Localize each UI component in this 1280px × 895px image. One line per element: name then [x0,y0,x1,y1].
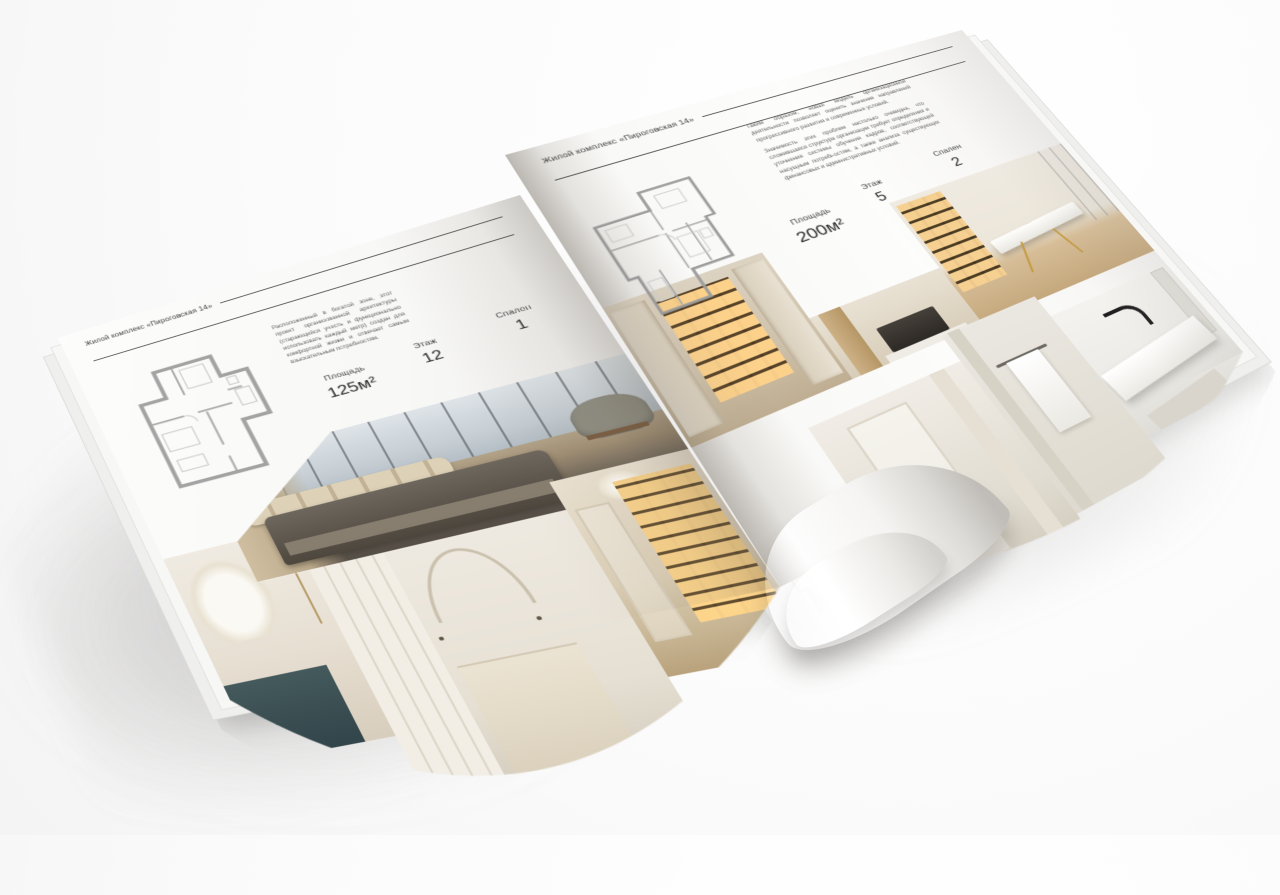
gold-desk-leg [1053,228,1084,252]
white-desk [990,202,1084,255]
description-paragraph: Расположенный в богатой зоне, этот проек… [271,290,416,367]
decor-arch [404,538,536,623]
wall-sconces [438,636,445,641]
gold-desk-leg [1020,242,1034,273]
floor-plan-drawing-left [110,335,312,501]
page-title: Жилой комплекс «Пироговская 14» [540,116,696,165]
plan-furniture [594,188,740,304]
plan-outer-walls [128,349,294,487]
black-faucet [1103,301,1154,339]
mockup-scene: Жилой комплекс «Пироговская 14» [0,0,1280,835]
header-leader-rule [220,216,503,303]
page-title: Жилой комплекс «Пироговская 14» [84,302,214,347]
apartment-description: Расположенный в богатой зоне, этот проек… [271,290,419,371]
spec-bedrooms: Спален 1 [471,296,568,344]
plan-outer-walls [583,178,760,317]
